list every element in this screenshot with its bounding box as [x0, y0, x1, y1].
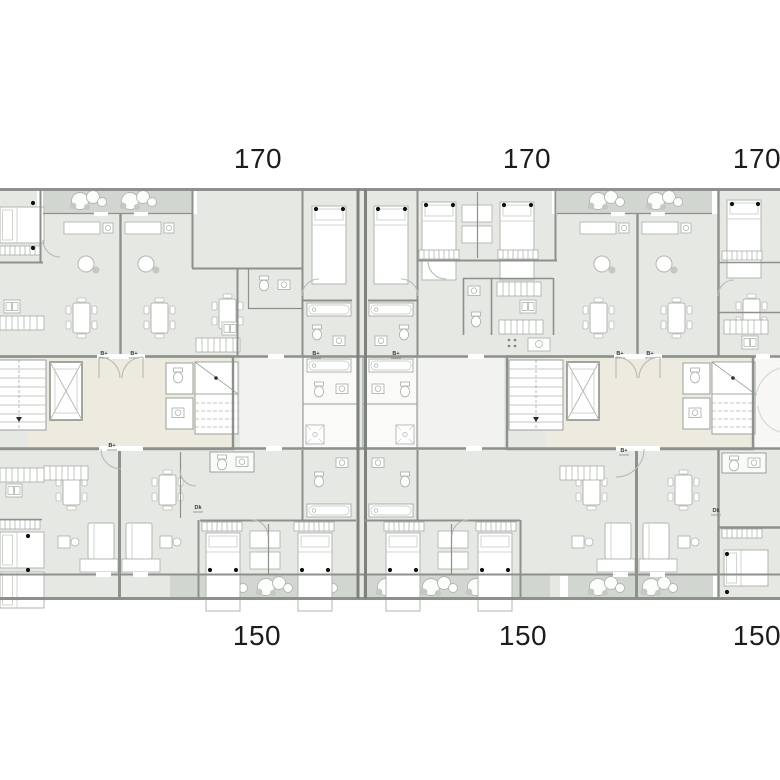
unit-label-170-right: 170 — [733, 143, 780, 174]
floor-plan-canvas: 170 170 170 150 150 150 B+ B+ B+ B+ B+ B… — [0, 0, 780, 780]
staircase-icon — [195, 362, 238, 434]
door-tag: B+ — [392, 351, 399, 357]
staircase-icon — [509, 360, 563, 430]
unit-label-170-left: 170 — [234, 143, 282, 174]
corridor — [755, 357, 780, 449]
bathroom-bottom-corridor-left — [210, 452, 254, 472]
staircase-icon — [712, 362, 755, 434]
door-tag: B+ — [312, 351, 319, 357]
bedrooms-bottom-left-edge — [0, 520, 44, 608]
door-tag: Dk — [194, 505, 202, 511]
facade-recess — [712, 189, 718, 214]
kitchen-dining-right-edge — [722, 200, 768, 349]
floor-plan-drawing: 170 170 170 150 150 150 B+ B+ B+ B+ B+ B… — [0, 0, 780, 780]
door-tag: B+ — [646, 351, 653, 357]
unit-label-170-middle: 170 — [503, 143, 551, 174]
corridor — [419, 357, 504, 449]
door-tag: B+ — [108, 443, 115, 449]
balcony-top-left — [43, 189, 192, 214]
elevator-icon — [50, 362, 82, 420]
door-tag: B+ — [616, 351, 623, 357]
door-tag: B+ — [620, 448, 627, 454]
elevator-icon — [567, 362, 599, 420]
door-tag: B+ — [100, 351, 107, 357]
unit-label-150-right: 150 — [733, 620, 780, 651]
bedroom-top-left-edge — [0, 201, 44, 255]
staircase-icon — [0, 360, 46, 430]
door-tag: B+ — [130, 351, 137, 357]
balcony-bottom-right — [568, 575, 713, 598]
facade-recess — [560, 576, 568, 598]
unit-label-150-left: 150 — [233, 620, 281, 651]
bathroom-bottom-corridor-right — [722, 453, 766, 473]
corridor — [240, 357, 302, 449]
unit-label-150-middle: 150 — [499, 620, 547, 651]
balcony-top-middle — [557, 189, 712, 214]
door-tag: Dk — [712, 508, 720, 514]
